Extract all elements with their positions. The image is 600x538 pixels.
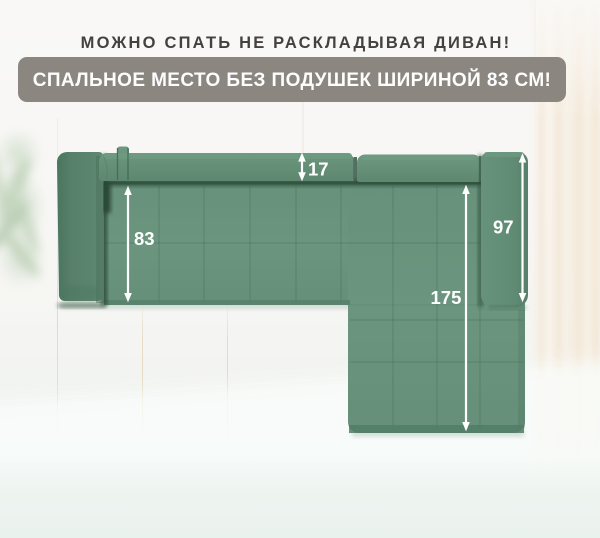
svg-text:97: 97: [493, 217, 514, 238]
svg-text:175: 175: [431, 287, 462, 308]
svg-text:17: 17: [308, 159, 329, 180]
svg-text:83: 83: [134, 228, 155, 249]
